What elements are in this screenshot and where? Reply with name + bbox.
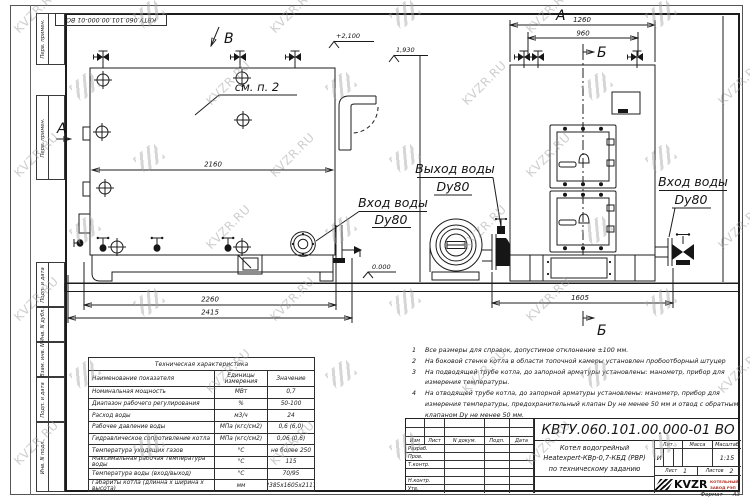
hole-center-marks <box>93 69 252 256</box>
ground-line <box>65 283 739 292</box>
note-number: 2 <box>412 357 425 368</box>
cell-name: Диапазон рабочего регулирования <box>89 399 214 410</box>
section-b-top: Б <box>583 44 607 61</box>
dim-1260: 1260 <box>573 16 591 24</box>
table-row: Диапазон рабочего регулирования%50-100 <box>89 399 314 411</box>
water-outlet-callout: Выход воды Dy80 <box>415 161 502 233</box>
doc-number: КВТУ.060.101.00.000-01 ВО <box>534 419 741 441</box>
left-wall-fittings <box>74 127 90 247</box>
table-row: Рабочее давление водыМПа (кгс/см2)0,6 (6… <box>89 422 314 434</box>
table-row: Максимальная рабочая температура воды°С1… <box>89 457 314 469</box>
col-data: Дата <box>510 437 534 444</box>
dim-1605: 1605 <box>571 294 589 302</box>
header-value: Значение <box>267 371 314 386</box>
cell-value: не более 250 <box>267 445 314 456</box>
right-bottom-pipe <box>333 225 362 263</box>
row-utv: Утв. <box>406 485 445 493</box>
col-list: Лист <box>425 437 445 444</box>
water-inlet-side: Вход воды Dy80 <box>291 195 428 256</box>
col-izm: Изм <box>406 437 425 444</box>
front-base-frame <box>510 255 655 281</box>
note-item: 2На боковой стенке котла в области топоч… <box>412 357 742 368</box>
outlet-text-2: Dy80 <box>437 179 470 194</box>
side-bottom-dimensions: 2260 2415 <box>68 258 352 323</box>
cell-value: 50-100 <box>267 399 314 410</box>
cell-units: °С <box>214 469 267 480</box>
cell-units: мм <box>214 480 267 491</box>
dim-2260: 2260 <box>201 296 219 304</box>
note-text: На отводящей трубе котла, до запорной ар… <box>425 389 742 421</box>
product-name-line: Котел водогрейный <box>560 443 629 453</box>
cell-name: Рабочее давление воды <box>89 422 214 433</box>
front-bottom-dimension: 1605 <box>492 268 673 308</box>
outlet-text-1: Выход воды <box>415 161 495 176</box>
table-row: Номинальная мощностьМВт0,7 <box>89 387 314 399</box>
tech-table-header: Наименование показателя Единицы измерени… <box>89 371 314 387</box>
side-base-frame <box>92 255 333 281</box>
cell-value: 70/95 <box>267 469 314 480</box>
see-note-text: см. п. 2 <box>235 80 279 94</box>
cell-value: 0,6 (6,0) <box>267 422 314 433</box>
cell-units: МПа (кгс/см2) <box>214 434 267 445</box>
mass-header: Масса <box>682 441 712 449</box>
cell-name: Максимальная рабочая температура воды <box>89 457 214 468</box>
header-units: Единицы измерения <box>214 371 267 386</box>
table-row: Температура уходящих газов°Сне более 250 <box>89 445 314 457</box>
cell-units: МВт <box>214 387 267 398</box>
scale-value: 1:15 <box>712 449 741 467</box>
product-name-line: Heatexpert-КВр-0,7-КБД (РВР) <box>543 453 645 463</box>
top-valves-side <box>94 51 302 68</box>
see-note-callout: см. п. 2 <box>195 80 297 115</box>
cell-name: Температура воды (вход/выход) <box>89 469 214 480</box>
sheet-label: Лист <box>665 469 677 474</box>
blower-fan <box>430 219 482 280</box>
zero-level-mark: 0.000 <box>363 263 396 278</box>
note-number: 1 <box>412 346 425 357</box>
elev-1930-text: 1,930 <box>396 46 415 54</box>
row-nkontr: Н.контр. <box>406 477 445 484</box>
cell-value: 0,7 <box>267 387 314 398</box>
format-word: Формат <box>700 492 722 498</box>
drawing-sheet: Перв. примен. Перв. примен. Подп. и дата… <box>0 0 750 500</box>
sheet-cell: Лист1 <box>654 467 697 476</box>
note-number: 3 <box>412 368 425 390</box>
sheets-cell: Листов2 <box>697 467 741 476</box>
elev-2100-text: +2,100 <box>336 32 360 40</box>
cell-units: °С <box>214 445 267 456</box>
cell-name: Номинальная мощность <box>89 387 214 398</box>
blank-cell <box>534 476 654 493</box>
cell-value: 115 <box>267 457 314 468</box>
cell-units: °С <box>214 457 267 468</box>
tech-table: Техническая характеристика Наименование … <box>88 357 315 492</box>
table-row: Габариты котла (длинна х ширина х высота… <box>89 480 314 491</box>
section-b-top-label: Б <box>597 45 607 61</box>
inlet-front-text-1: Вход воды <box>658 174 728 189</box>
note-item: 3На подводящей трубе котла, до запорной … <box>412 368 742 390</box>
col-podp: Подп. <box>485 437 510 444</box>
dim-2415: 2415 <box>201 309 219 317</box>
view-b-label: В <box>224 31 234 47</box>
view-a-arrow: А <box>56 121 71 139</box>
note-text: На боковой стенке котла в области топочн… <box>425 357 742 368</box>
revision-grid: Изм Лист N докум. Подп. Дата Разраб. Про… <box>406 419 534 491</box>
table-row: Расход водым3/ч24 <box>89 410 314 422</box>
front-view: 1260 960 А Б <box>415 8 728 339</box>
sheet-value: 1 <box>683 468 687 475</box>
lit-value-cells: И <box>654 449 682 467</box>
cell-name: Расход воды <box>89 410 214 421</box>
section-b-bottom: Б <box>583 311 607 339</box>
outlet-connection <box>482 218 510 270</box>
table-row: Температура воды (вход/выход)°С70/95 <box>89 469 314 481</box>
format-label: Формат А3 <box>660 492 740 498</box>
company-logo: KVZR КОТЕЛЬНЫЙ ЗАВОД РЭП <box>654 476 741 493</box>
cell-name: Гидравлическое сопротивление котла <box>89 434 214 445</box>
notes-list: 1Все размеры для справок, допустимое отк… <box>412 346 742 422</box>
cell-units: МПа (кгс/см2) <box>214 422 267 433</box>
elevation-2100: +2,100 <box>329 32 374 48</box>
cell-units: % <box>214 399 267 410</box>
note-item: 4На отводящей трубе котла, до запорной а… <box>412 389 742 421</box>
flue-duct <box>339 96 378 150</box>
sheets-label: Листов <box>706 469 724 474</box>
title-block: Изм Лист N докум. Подп. Дата Разраб. Про… <box>405 418 740 492</box>
kvzr-logo-icon <box>654 479 674 490</box>
row-tkontr: Т.контр. <box>406 461 445 468</box>
view-a-label: А <box>56 121 67 137</box>
logo-subtitle-line: ЗАВОД РЭП <box>710 485 739 490</box>
note-item: 1Все размеры для справок, допустимое отк… <box>412 346 742 357</box>
inlet-flange <box>291 232 316 257</box>
inlet-front-text-2: Dy80 <box>675 192 708 207</box>
sheets-value: 2 <box>730 468 734 475</box>
side-view: 2160 В +2,100 1,930 <box>56 27 428 323</box>
dim-2160: 2160 <box>204 161 222 169</box>
row-razrab: Разраб. <box>406 445 445 452</box>
logo-subtitle: КОТЕЛЬНЫЙ ЗАВОД РЭП <box>710 479 739 489</box>
dim-960: 960 <box>576 30 590 38</box>
note-number: 4 <box>412 389 425 421</box>
note-text: Все размеры для справок, допустимое откл… <box>425 346 742 357</box>
inlet-text-2: Dy80 <box>375 212 408 227</box>
inlet-text-1: Вход воды <box>358 195 428 210</box>
row-prov: Пров. <box>406 453 445 460</box>
scale-header: Масштаб <box>712 441 741 449</box>
elev-0-text: 0.000 <box>372 263 391 271</box>
lit-value: И <box>655 449 664 466</box>
product-name: Котел водогрейный Heatexpert-КВр-0,7-КБД… <box>534 441 654 476</box>
format-size: А3 <box>733 492 740 498</box>
cell-value: 2385х1605х2117 <box>267 480 314 491</box>
note-text: На подводящей трубе котла, до запорной а… <box>425 368 742 390</box>
section-b-bottom-label: Б <box>597 323 607 339</box>
cell-name: Температура уходящих газов <box>89 445 214 456</box>
cell-units: м3/ч <box>214 410 267 421</box>
mass-value <box>682 449 712 467</box>
product-name-line: по техническому заданию <box>549 464 641 474</box>
view-a-label-front: А <box>555 8 566 24</box>
water-inlet-front: Вход воды Dy80 <box>655 174 728 266</box>
cell-name: Габариты котла (длинна х ширина х высота… <box>89 480 214 491</box>
header-name: Наименование показателя <box>89 371 214 386</box>
cell-value: 24 <box>267 410 314 421</box>
lit-header: Лит. <box>654 441 682 449</box>
table-row: Гидравлическое сопротивление котлаМПа (к… <box>89 434 314 446</box>
tech-table-title: Техническая характеристика <box>89 358 314 371</box>
logo-text: KVZR <box>674 478 707 491</box>
col-dokum: N докум. <box>445 437 485 444</box>
cell-value: 0,06 (0,6) <box>267 434 314 445</box>
